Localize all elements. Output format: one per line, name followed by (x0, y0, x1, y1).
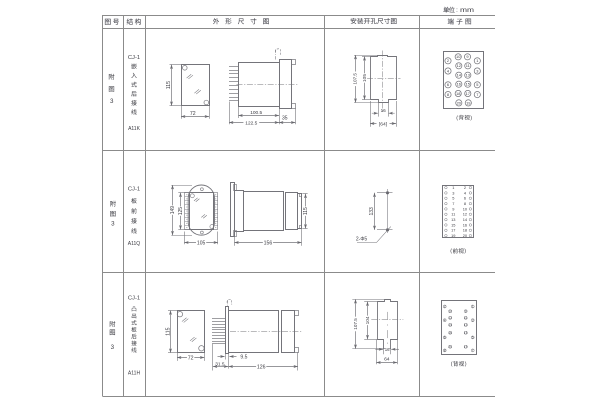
svg-text:107.5: 107.5 (353, 318, 358, 330)
svg-text:3: 3 (476, 68, 478, 73)
svg-text:12: 12 (448, 316, 452, 320)
svg-text:9: 9 (465, 309, 467, 313)
svg-text:5: 5 (476, 82, 478, 87)
svg-text:104: 104 (365, 316, 371, 324)
svg-text:6: 6 (464, 196, 466, 201)
svg-text:16: 16 (381, 108, 387, 113)
svg-text:A11K: A11K (128, 126, 141, 132)
svg-text:7: 7 (472, 349, 474, 353)
svg-text:8: 8 (444, 349, 446, 353)
svg-text:3: 3 (111, 221, 115, 228)
svg-text:18: 18 (463, 228, 467, 233)
svg-text:16: 16 (457, 82, 461, 87)
svg-text:115: 115 (165, 327, 171, 335)
svg-text:CJ-1: CJ-1 (128, 55, 140, 61)
svg-text:A11Q: A11Q (128, 241, 141, 247)
svg-text:5: 5 (472, 336, 474, 340)
svg-text:19: 19 (451, 233, 455, 238)
svg-text:16: 16 (463, 222, 467, 227)
svg-text:3: 3 (452, 190, 454, 195)
svg-text:15: 15 (464, 331, 468, 335)
svg-text:2: 2 (447, 58, 449, 63)
svg-text:9: 9 (452, 206, 454, 211)
svg-text:17: 17 (451, 228, 455, 233)
svg-text:11: 11 (451, 212, 455, 217)
svg-text:(: ( (451, 362, 453, 368)
svg-text:CJ-1: CJ-1 (128, 187, 140, 193)
svg-text:9: 9 (466, 54, 468, 59)
svg-text:12: 12 (457, 63, 461, 68)
svg-text:149: 149 (170, 206, 176, 215)
svg-text:4: 4 (444, 318, 446, 322)
svg-text:12: 12 (463, 212, 467, 217)
svg-text:125: 125 (178, 207, 184, 216)
svg-text:3: 3 (111, 344, 115, 351)
svg-text:1: 1 (476, 58, 478, 63)
svg-text:17: 17 (466, 91, 470, 96)
svg-text:64: 64 (384, 357, 390, 363)
svg-text:9.5: 9.5 (240, 355, 247, 361)
svg-text:122.5: 122.5 (245, 120, 257, 126)
svg-text:20: 20 (448, 345, 452, 349)
svg-text:115: 115 (303, 207, 309, 215)
svg-text:107.5: 107.5 (352, 73, 357, 85)
svg-text:11: 11 (466, 63, 470, 68)
svg-text:1: 1 (472, 305, 474, 309)
svg-text:19: 19 (466, 100, 470, 105)
svg-text:15: 15 (451, 222, 455, 227)
svg-text:): ) (465, 362, 467, 368)
svg-text:(: ( (456, 115, 458, 121)
svg-text:35: 35 (282, 116, 288, 122)
svg-text:8: 8 (464, 201, 466, 206)
svg-text:11: 11 (464, 316, 468, 320)
svg-text:100.5: 100.5 (250, 110, 262, 116)
svg-text:7: 7 (452, 201, 454, 206)
svg-text:19: 19 (464, 345, 468, 349)
svg-text:): ) (464, 249, 466, 255)
svg-text:16: 16 (448, 331, 452, 335)
svg-text:[64]: [64] (379, 121, 388, 127)
svg-text:105: 105 (197, 240, 206, 246)
svg-text:2: 2 (464, 185, 466, 190)
svg-text:14: 14 (448, 323, 452, 327)
svg-text:): ) (470, 115, 472, 121)
svg-text:1: 1 (452, 185, 454, 190)
svg-text:16: 16 (385, 347, 390, 352)
svg-text:3: 3 (110, 98, 114, 105)
svg-text:10: 10 (448, 309, 452, 313)
svg-text:133: 133 (369, 207, 375, 216)
svg-text:13: 13 (451, 217, 455, 222)
svg-text:115: 115 (166, 81, 172, 89)
svg-text:31.5: 31.5 (215, 361, 225, 367)
svg-text:13: 13 (466, 73, 470, 78)
svg-text:6: 6 (444, 336, 446, 340)
svg-text:72: 72 (190, 111, 196, 117)
svg-text:72: 72 (188, 355, 194, 361)
svg-text:5: 5 (452, 196, 454, 201)
svg-text:8: 8 (447, 92, 449, 97)
svg-text:7: 7 (476, 92, 478, 97)
svg-text:(: ( (450, 249, 452, 255)
svg-text:126: 126 (257, 364, 266, 370)
svg-text:15: 15 (466, 82, 470, 87)
svg-text:3: 3 (472, 318, 474, 322)
svg-text:2: 2 (444, 305, 446, 309)
svg-text:18: 18 (456, 91, 460, 96)
svg-text:156: 156 (264, 240, 273, 246)
svg-text:CJ-1: CJ-1 (128, 296, 140, 302)
svg-text:6: 6 (447, 82, 449, 87)
svg-text:105: 105 (362, 74, 368, 82)
svg-text:mm: mm (460, 7, 474, 14)
svg-text:13: 13 (464, 323, 468, 327)
svg-text:2-Φ5: 2-Φ5 (356, 236, 367, 242)
svg-text:A11H: A11H (128, 371, 141, 377)
